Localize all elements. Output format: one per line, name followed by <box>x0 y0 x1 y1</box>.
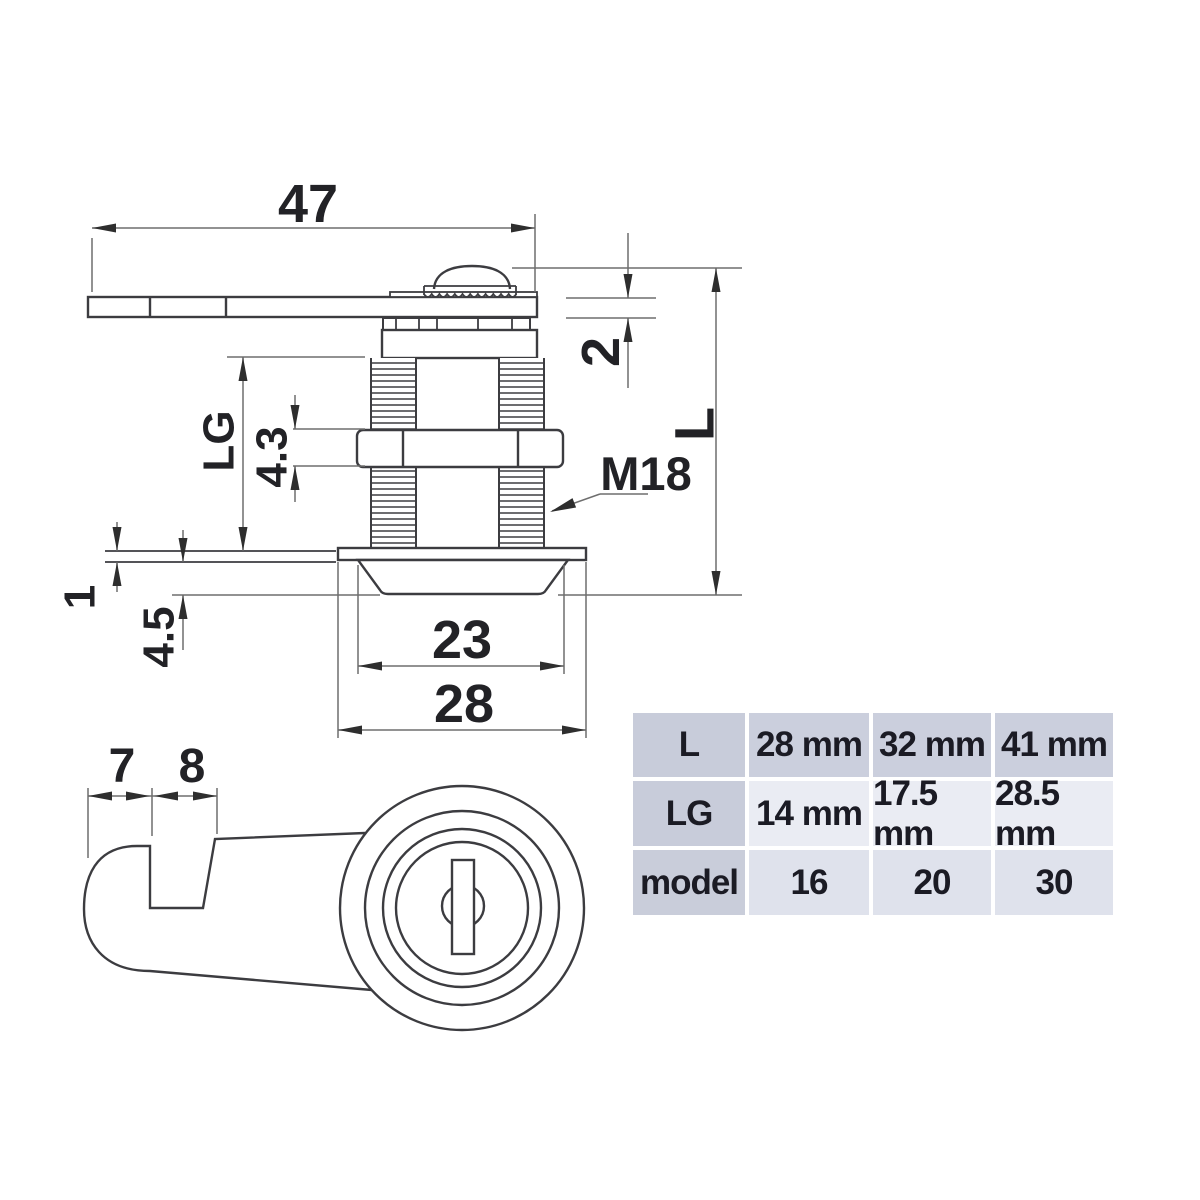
keyway-slot <box>452 860 474 954</box>
body-collar <box>383 318 530 330</box>
spec-model-value-1: 16 <box>749 850 869 915</box>
side-view-drawing <box>88 266 586 594</box>
dim-flange-height-label: 4.5 <box>135 606 184 667</box>
lock-face <box>340 786 584 1030</box>
spec-row-model-header: model <box>633 850 745 915</box>
dim-hook-notch-label: 8 <box>179 740 206 793</box>
spec-L-value-3: 41 mm <box>995 713 1113 777</box>
base-flange <box>358 560 568 594</box>
mounting-panel-lines <box>105 551 336 562</box>
dim-door-thickness <box>113 522 122 592</box>
spec-LG-value-1: 14 mm <box>749 781 869 846</box>
dim-nut-height <box>291 395 366 502</box>
spec-row-LG-header: LG <box>633 781 745 846</box>
dim-thread-length-label: LG <box>195 410 244 471</box>
dim-cam-length-label: 47 <box>278 174 338 234</box>
spec-row-L-header: L <box>633 713 745 777</box>
spec-model-value-3: 30 <box>995 850 1113 915</box>
base-washer <box>338 548 586 560</box>
hex-nut <box>357 430 563 467</box>
front-view-drawing <box>84 786 584 1030</box>
dim-washer-diameter-label: 28 <box>434 674 494 734</box>
dim-cam-thickness-label: 2 <box>571 337 631 367</box>
dim-body-length-label: L <box>663 407 726 441</box>
dim-hook-tip-label: 7 <box>109 740 136 793</box>
spec-L-value-2: 32 mm <box>873 713 991 777</box>
dim-flange-diameter-label: 23 <box>432 610 492 670</box>
dim-hook-tip <box>88 788 217 858</box>
lock-body <box>382 330 537 358</box>
thread-spec-label: M18 <box>600 447 691 500</box>
spec-LG-value-3: 28.5 mm <box>995 781 1113 846</box>
spec-table: L 28 mm 32 mm 41 mm LG 14 mm 17.5 mm 28.… <box>633 713 1113 915</box>
spec-L-value-1: 28 mm <box>749 713 869 777</box>
cam-hook <box>84 833 372 990</box>
spec-model-value-2: 20 <box>873 850 991 915</box>
spec-LG-value-2: 17.5 mm <box>873 781 991 846</box>
technical-drawing-page: 47 2 L LG 4.3 1 4.5 23 28 M18 7 8 L 28 m… <box>0 0 1200 1200</box>
cam-lock-drawing: 47 2 L LG 4.3 1 4.5 23 28 M18 7 8 <box>0 0 1200 1200</box>
dim-nut-height-label: 4.3 <box>248 426 297 487</box>
dim-door-thickness-label: 1 <box>56 585 105 609</box>
front-view-dimensions <box>88 788 217 858</box>
